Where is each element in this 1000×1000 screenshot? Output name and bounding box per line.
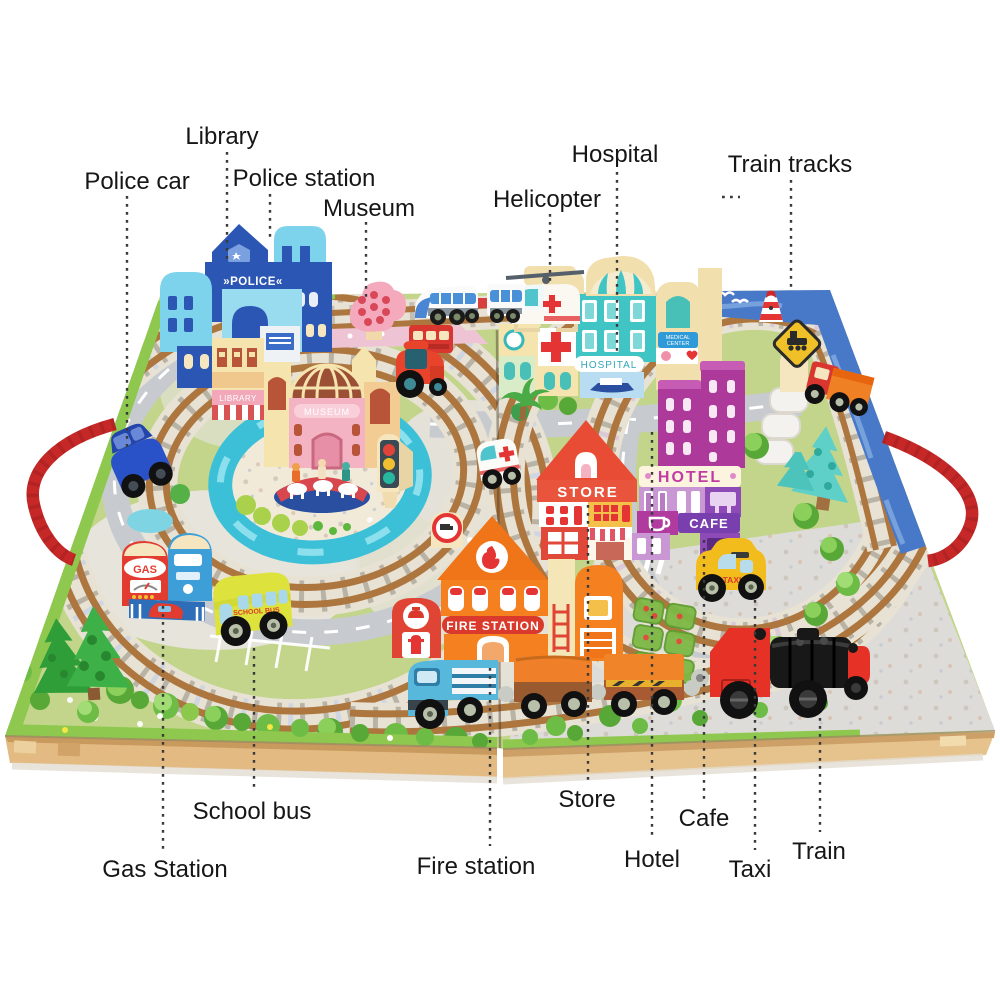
svg-text:GAS: GAS [133, 564, 157, 576]
svg-text:HOTEL: HOTEL [658, 469, 722, 486]
svg-text:Store: Store [558, 786, 615, 813]
svg-text:Police station: Police station [233, 165, 376, 192]
svg-text:Museum: Museum [323, 195, 415, 222]
svg-text:Fire station: Fire station [417, 853, 536, 880]
svg-text:MUSEUM: MUSEUM [304, 407, 350, 417]
svg-text:Cafe: Cafe [679, 805, 730, 832]
svg-text:Police car: Police car [84, 168, 189, 195]
svg-text:CENTER: CENTER [667, 341, 690, 347]
svg-text:LIBRARY: LIBRARY [219, 394, 257, 403]
svg-text:School bus: School bus [193, 798, 312, 825]
svg-text:Helicopter: Helicopter [493, 186, 601, 213]
svg-text:Train tracks: Train tracks [728, 151, 852, 178]
svg-text:»POLICE«: »POLICE« [223, 276, 283, 288]
svg-text:Library: Library [185, 123, 258, 150]
svg-text:STORE: STORE [557, 484, 618, 501]
svg-text:Taxi: Taxi [729, 856, 772, 883]
svg-text:Gas Station: Gas Station [102, 856, 227, 883]
svg-text:Hotel: Hotel [624, 846, 680, 873]
svg-text:Train: Train [792, 838, 846, 865]
svg-text:HOSPITAL: HOSPITAL [581, 360, 638, 371]
svg-text:FIRE STATION: FIRE STATION [446, 619, 540, 633]
svg-text:CAFE: CAFE [689, 516, 728, 531]
svg-text:Hospital: Hospital [572, 141, 659, 168]
